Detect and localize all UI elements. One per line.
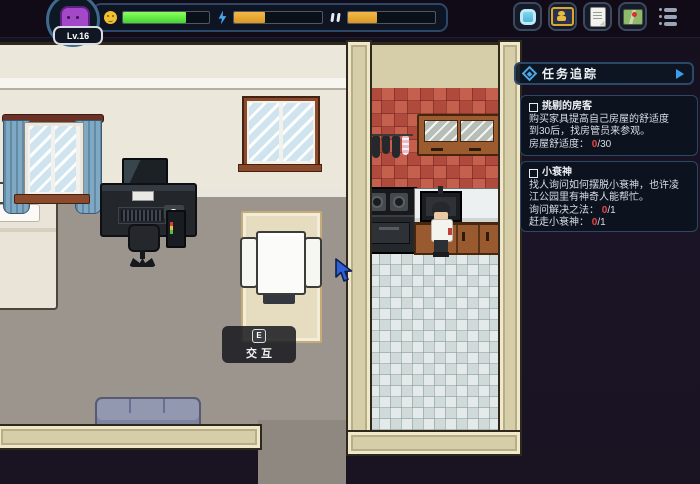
held-item [448,228,452,235]
map-icon [623,9,643,25]
window-glass [55,126,76,192]
quest-progress: 询问解决之法： 0/1 [529,205,689,218]
cabinet-handle [431,148,443,151]
desk-paper [132,191,154,201]
bedroom-window-middle [242,96,320,170]
mood-bar-fill [123,12,186,23]
window-glass [249,103,279,161]
level-badge: Lv.16 [53,26,103,45]
progress-total: /1 [607,205,615,216]
stove-top [365,189,416,217]
window-glass [283,103,313,161]
energy-bar-fill [234,12,265,23]
oven-drawer [370,222,410,244]
double-mark-icon [330,12,342,24]
quest-checkbox [529,169,538,178]
doorway-floor [258,420,346,484]
coat [392,136,400,158]
collapse-arrow-icon[interactable] [676,69,684,79]
keycap-icon: E [252,329,266,343]
progress-total: /30 [597,139,611,150]
coat [372,136,380,158]
cabinet-glass [460,120,494,142]
quest-desc: 购买家具提高自己房屋的舒适度 [529,114,689,127]
quest-entry-2[interactable]: 小衰神 找人询问如何摆脱小衰神，也许凌 江公园里有神奇人能帮忙。 询问解决之法：… [520,161,698,232]
bed-blanket-fold [0,228,56,232]
divider-wall [346,40,372,456]
pc-led-lights [170,222,173,234]
character-button[interactable] [548,2,577,31]
character-card-icon [551,7,574,26]
inventory-button[interactable] [513,2,542,31]
quest-desc: 找人询问如何摆脱小衰神，也许凌 [529,180,689,193]
cabinet-handle [469,148,481,151]
quest-progress: 赶走小衰神： 0/1 [529,217,689,230]
status-bars-panel [92,3,448,32]
interaction-prompt: E 交互 [222,326,296,363]
keyboard [118,207,166,224]
quest-panel-title: 任务追踪 [542,65,669,82]
quest-tracker-header[interactable]: 任务追踪 [514,62,694,85]
chair-post [140,250,145,259]
scroll-icon [590,7,606,27]
quest-desc: 江公园里有神奇人能帮忙。 [529,192,689,205]
coat [382,136,390,154]
towel [402,136,409,155]
chair-legs [129,258,156,267]
dining-chair-right [304,237,322,288]
quest-title: 小衰神 [542,167,572,180]
cabinet-glass [424,120,458,142]
window-sill [238,164,322,172]
pc-tower [166,210,186,248]
progress-label: 询问解决之法： [529,205,599,216]
menu-list-icon [659,8,677,26]
social-bar-group [330,11,436,24]
window-sill [14,194,90,204]
diamond-icon [522,66,538,82]
top-menu-buttons [513,2,682,31]
window-glass [30,126,51,192]
smiley-icon [104,11,117,24]
window-frame [247,101,315,165]
wall-cabinet [417,114,501,156]
mood-bar-group [104,11,210,24]
quest-checkbox [529,103,538,112]
energy-bar-group [217,11,323,25]
bedroom-window-left [25,123,83,201]
progress-total: /1 [597,217,605,228]
player-shoes [433,252,449,257]
quest-progress: 房屋舒适度： 0/30 [529,139,689,152]
bag-icon [520,9,536,25]
south-wall-left [0,424,262,450]
office-chair [127,224,159,270]
wall-molding [0,78,346,90]
main-menu-button[interactable] [653,2,682,31]
map-button[interactable] [618,2,647,31]
quest-entry-1[interactable]: 挑剔的房客 购买家具提高自己房屋的舒适度 到30后，找房管员来参观。 房屋舒适度… [520,95,698,156]
social-bar-fill [348,12,377,23]
burner [390,193,408,211]
quest-log-button[interactable] [583,2,612,31]
coat-hooks [371,132,413,160]
energy-bar [233,11,323,24]
dining-table[interactable] [256,231,306,295]
chair-back [128,224,160,252]
game-screen: E 交互 Lv.16 [0,0,700,484]
lightning-icon [217,11,228,25]
mood-bar [122,11,210,24]
mouse-cursor [334,258,354,284]
quest-title: 挑剔的房客 [542,101,592,114]
interaction-label: 交互 [242,345,276,361]
faucet [438,186,443,194]
progress-label: 房屋舒适度： [529,139,589,150]
south-wall-kitchen [346,430,522,456]
progress-label: 赶走小衰神： [529,217,589,228]
player-character [428,202,454,260]
east-wall [498,40,522,456]
quest-desc: 到30后，找房管员来参观。 [529,126,689,139]
social-bar [347,11,436,24]
